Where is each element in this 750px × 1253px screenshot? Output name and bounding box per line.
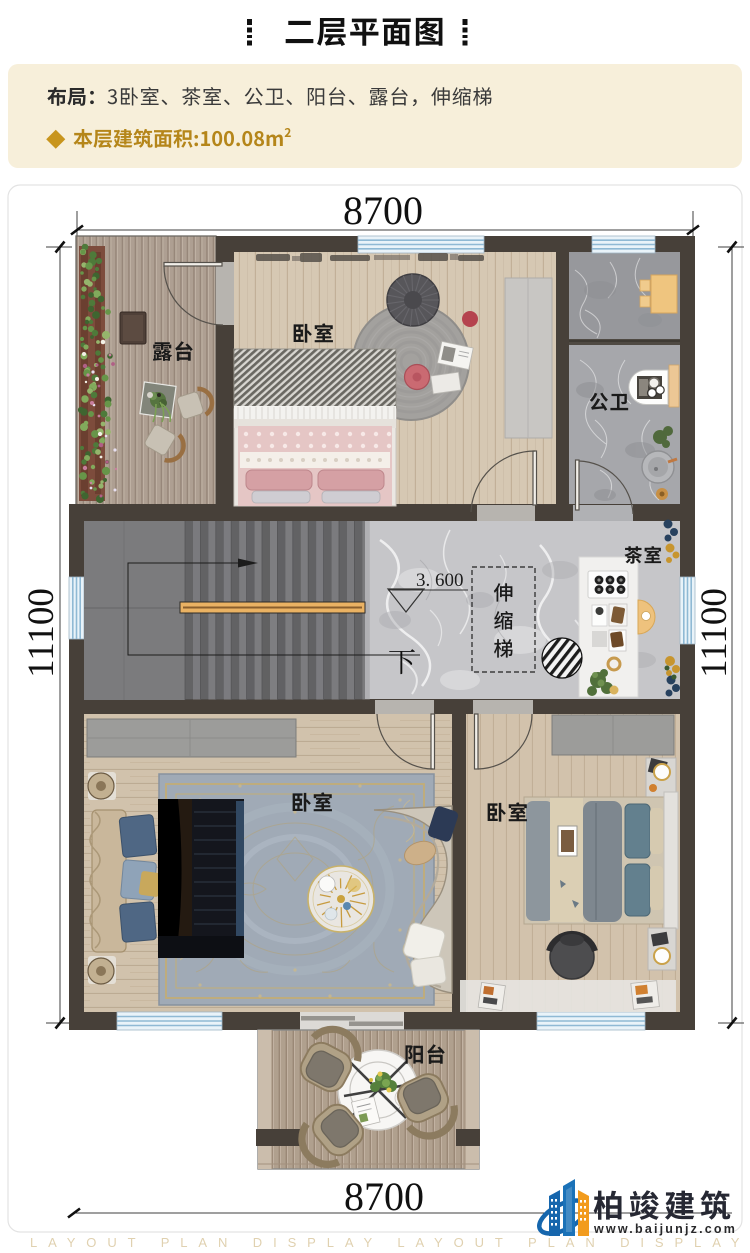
svg-text:www.baijunjz.com: www.baijunjz.com xyxy=(593,1222,737,1236)
svg-text:3. 600: 3. 600 xyxy=(416,570,464,591)
svg-text:8700: 8700 xyxy=(343,188,423,233)
svg-text:LAYOUT PLAN DISPLAY LAYOUT PLA: LAYOUT PLAN DISPLAY LAYOUT PLAN DISPLAY xyxy=(30,1235,750,1250)
svg-text:8700: 8700 xyxy=(344,1174,424,1219)
svg-text:11100: 11100 xyxy=(21,588,62,678)
svg-text:11100: 11100 xyxy=(694,588,735,678)
